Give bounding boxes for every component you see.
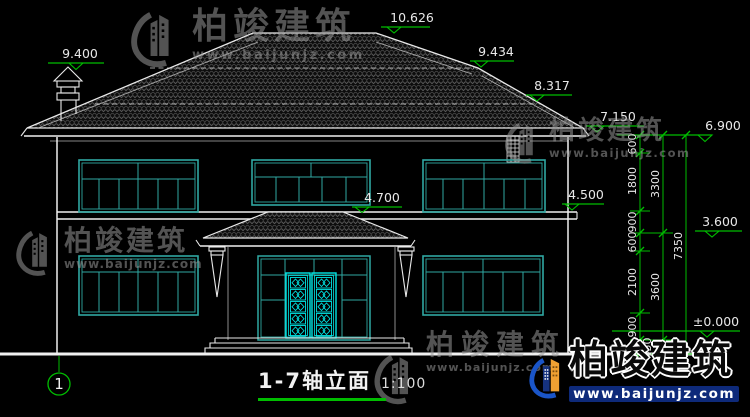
elevation-label-porch-ridge: 4.700 (364, 190, 400, 205)
window-2f-right (423, 160, 545, 212)
elevation-label-main-eave: 6.900 (705, 118, 741, 133)
dim-inner-600b: 600 (626, 232, 639, 253)
elevation-label-chimney: 9.400 (62, 46, 98, 61)
axis-bubble: 1 (48, 356, 70, 395)
porch-tip-right (411, 240, 415, 246)
entry-door-leaves (286, 273, 336, 338)
eave-tip-left (21, 128, 27, 136)
dim-inner-900a: 900 (626, 212, 639, 233)
title-block: 1-7轴立面 1:100 (258, 365, 426, 401)
drawing-title: 1-7轴立面 (258, 365, 371, 395)
title-underline (258, 398, 386, 401)
dim-inner-900b: 900 (626, 317, 639, 338)
elevation-marker-right-eave: 7.150 (586, 109, 644, 132)
porch-drop-right (398, 247, 414, 297)
dim-total-7350: 7350 (672, 232, 685, 260)
cad-elevation-screenshot: 9.400 10.626 9.434 8.317 7.150 6.900 (0, 0, 750, 417)
elevation-label-belt: 4.500 (568, 187, 604, 202)
elevation-label-upper-right: 9.434 (478, 44, 514, 59)
elevation-label-porch-eave: 3.600 (702, 214, 738, 229)
porch-drop-left (209, 247, 225, 297)
entry-door-frame (258, 256, 370, 340)
brand-logo-icon (528, 340, 565, 414)
dim-inner-2100: 2100 (626, 268, 639, 296)
drawing-scale: 1:100 (381, 376, 426, 392)
dim-inner-600a: 600 (626, 134, 639, 155)
elevation-marker-chimney: 9.400 (48, 46, 104, 70)
elevation-marker-belt: 4.500 (562, 187, 604, 210)
elevation-label-right-eave: 7.150 (600, 109, 636, 124)
dim-middle-3300: 3300 (649, 170, 662, 198)
elevation-label-zero: ±0.000 (693, 314, 739, 329)
elevation-label-mid-right: 8.317 (534, 78, 570, 93)
porch-roof (203, 212, 408, 238)
elevation-marker-porch-ridge: 4.700 (352, 190, 402, 213)
brand-logo-text: 柏竣建筑 (569, 338, 733, 383)
window-1f-right (423, 256, 543, 315)
eave-tip-right (583, 128, 589, 136)
dim-middle-3600: 3600 (649, 273, 662, 301)
elevation-label-ridge: 10.626 (390, 10, 434, 25)
elevation-marker-mid-right: 8.317 (526, 78, 572, 101)
porch-tip-left (196, 240, 200, 246)
dimension-chains: 600 1800 900 600 2100 900 3300 3600 450 … (626, 131, 696, 359)
axis-number: 1 (54, 375, 64, 393)
elevation-marker-ridge: 10.626 (381, 10, 434, 33)
window-1f-left (79, 256, 198, 315)
brand-logo-site: www.baijunjz.com (569, 386, 739, 402)
window-2f-middle (252, 160, 370, 205)
brand-logo: 柏竣建筑 www.baijunjz.com (528, 340, 750, 414)
dim-inner-1800: 1800 (626, 167, 639, 195)
window-2f-left (79, 160, 198, 212)
downspout-strip (507, 136, 519, 162)
elevation-marker-porch-eave: 3.600 (695, 214, 742, 237)
elevation-marker-upper-right: 9.434 (470, 44, 514, 67)
